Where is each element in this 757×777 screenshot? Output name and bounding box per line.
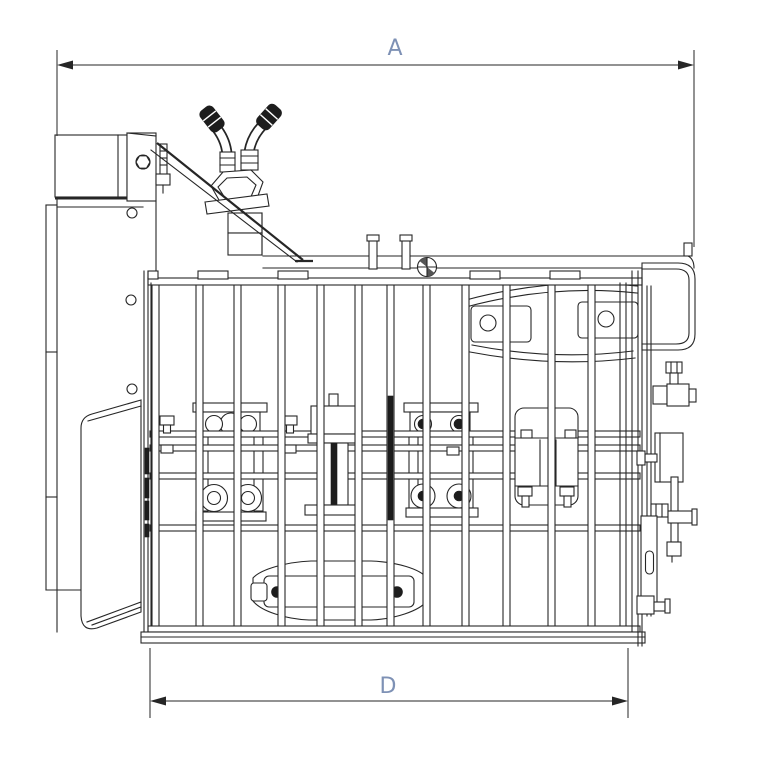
gearbox-housing (55, 133, 170, 271)
center-spindle-assembly (305, 394, 361, 515)
hydraulic-manifold (205, 170, 269, 255)
hydraulic-hoses (198, 102, 284, 255)
bottom-rails (141, 626, 645, 643)
roller-guard (251, 561, 427, 620)
gearbox-bolt (136, 155, 150, 169)
deck-pins (367, 235, 412, 269)
engineering-drawing-canvas: A D (0, 0, 757, 777)
motor-block-assembly (515, 408, 578, 507)
tension-rod (388, 396, 393, 520)
grille-top-rail (148, 271, 642, 285)
bearing-assembly-left (193, 403, 267, 521)
side-skid-plate (81, 400, 141, 629)
dimension-d-label: D (380, 674, 397, 699)
deck-knob (418, 257, 437, 276)
dimension-d: D (150, 648, 628, 718)
right-end-panel (642, 263, 695, 350)
dimension-a-label: A (387, 36, 402, 61)
technical-drawing-page: A D (0, 0, 757, 777)
top-deck (263, 243, 694, 268)
right-fittings (637, 362, 697, 614)
